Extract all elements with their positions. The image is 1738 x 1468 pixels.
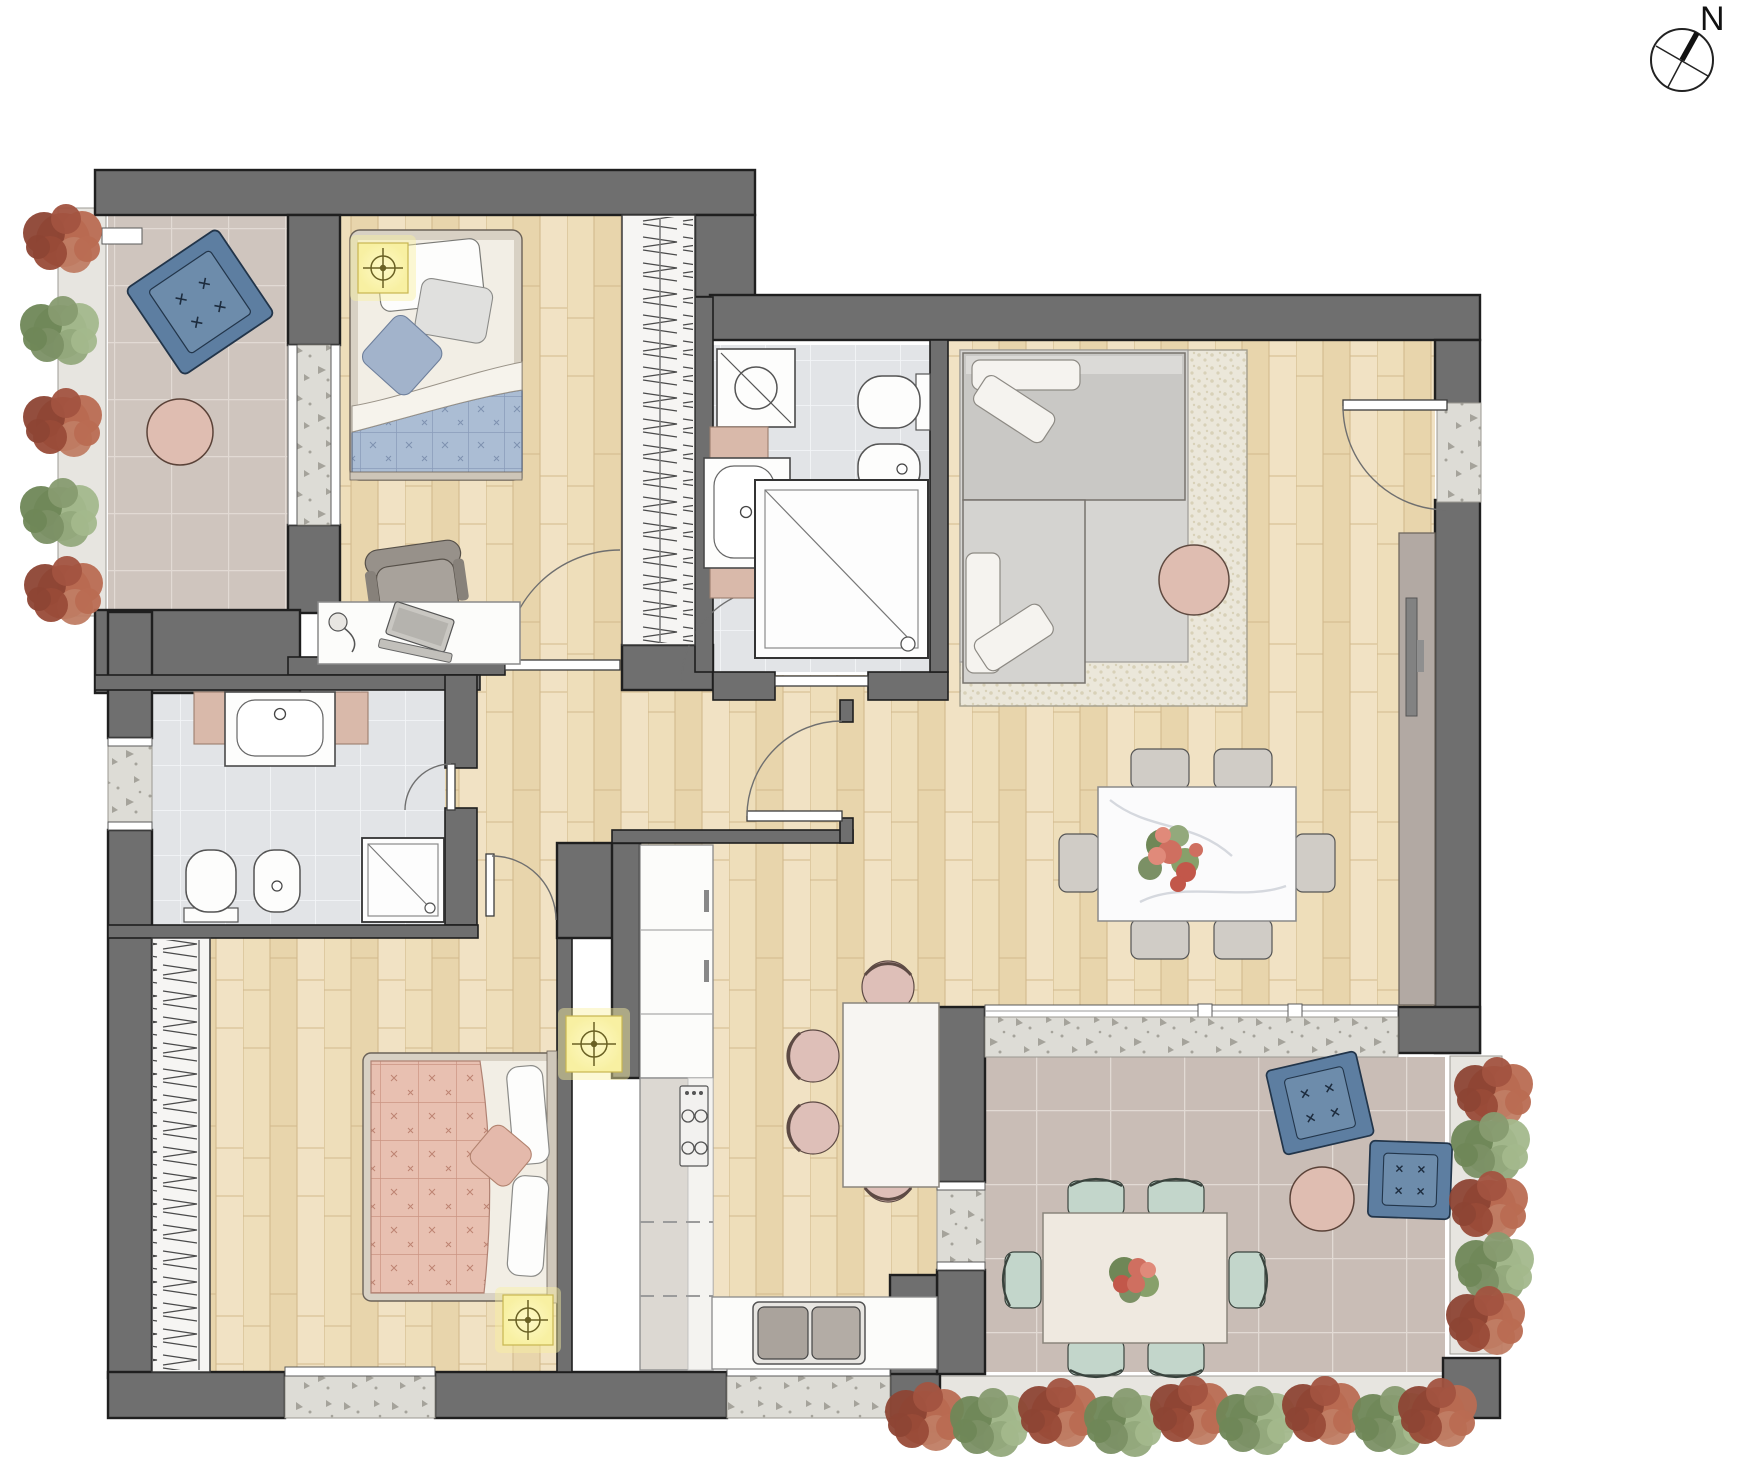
sink-counter [712, 1297, 937, 1369]
ceiling-light [495, 1287, 561, 1353]
tv [1406, 598, 1417, 716]
dining-chair [1059, 834, 1099, 892]
window-kitchen [727, 1367, 890, 1418]
window-bathroom2 [108, 738, 152, 830]
wardrobe-bedroom-2 [152, 938, 210, 1372]
plant-red [23, 204, 102, 273]
floor-plan-canvas: N [0, 0, 1738, 1468]
kitchen-table [843, 1003, 939, 1187]
bidet [254, 850, 300, 912]
plant-green [950, 1388, 1029, 1457]
dining-chair [1214, 919, 1272, 959]
dining-chair [1295, 834, 1335, 892]
compass: N [1651, 0, 1725, 91]
terrace-chair [1229, 1252, 1267, 1308]
white-pillow [507, 1175, 550, 1277]
sink-basin [812, 1307, 860, 1359]
desk [318, 601, 520, 664]
terrace-chair [1148, 1339, 1204, 1377]
faucet [741, 507, 752, 518]
dining-chair [1214, 749, 1272, 789]
double-bed [363, 1051, 557, 1303]
balcony-sill [102, 228, 142, 244]
terrace-chair [1068, 1339, 1124, 1377]
north-label: N [1700, 0, 1725, 38]
bedroom-2 [363, 1051, 557, 1303]
plant-red [1282, 1376, 1361, 1445]
entrance-landing [1437, 403, 1481, 502]
washing-machine [717, 349, 795, 427]
vanity-counter [710, 427, 768, 460]
dining-chair [1131, 749, 1189, 789]
window-kitchen-terrace [937, 1182, 985, 1270]
terrace-side-table [1290, 1167, 1354, 1231]
toilet [858, 374, 930, 430]
wardrobe-bedroom-1 [622, 215, 695, 645]
faucet [275, 709, 286, 720]
slider-handle [1198, 1004, 1212, 1017]
plant-red [24, 556, 103, 625]
toilet [184, 850, 238, 922]
ceiling-light [350, 235, 416, 301]
sliding-door-terrace [985, 1004, 1398, 1057]
terrace-chair [1068, 1179, 1124, 1217]
kitchen-chair [787, 1102, 839, 1154]
plant-green [20, 478, 99, 547]
terrace-chair [1148, 1179, 1204, 1217]
headboard [547, 1051, 557, 1303]
sink-basin [758, 1307, 808, 1359]
shower [755, 480, 928, 658]
tall-cabinets [640, 845, 713, 1078]
coffee-pouf [1159, 545, 1229, 615]
drain [901, 637, 915, 651]
plant-red [23, 388, 102, 457]
balcony-side-table [147, 399, 213, 465]
tv-sideboard [1399, 533, 1435, 1005]
pink-quilt [371, 1061, 490, 1293]
faucet [897, 464, 907, 474]
kitchen-chair [787, 1030, 839, 1082]
ceiling-light [558, 1008, 630, 1080]
sink [225, 692, 335, 766]
terrace-chair [1003, 1252, 1041, 1308]
plant-green [20, 296, 99, 365]
shower [362, 838, 444, 922]
faucet [272, 881, 282, 891]
stove [680, 1086, 708, 1166]
terrace-armchair [1368, 1141, 1453, 1220]
drain [425, 903, 435, 913]
window-bedroom1-balcony [288, 345, 340, 525]
plant-green [1216, 1386, 1295, 1455]
window-bedroom2 [285, 1367, 435, 1418]
dining-chair [1131, 919, 1189, 959]
slider-handle [1288, 1004, 1302, 1017]
